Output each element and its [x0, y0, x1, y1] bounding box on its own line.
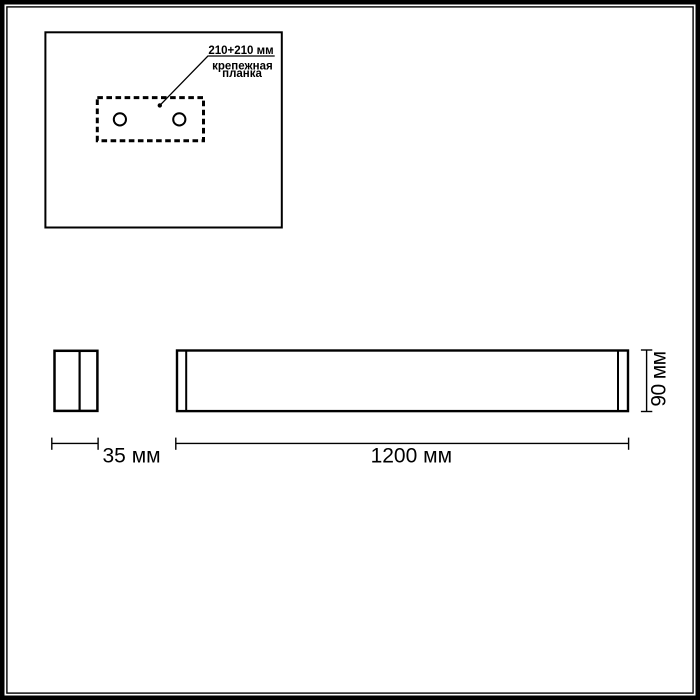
- svg-text:210+210 мм: 210+210 мм: [208, 45, 273, 57]
- svg-text:35 мм: 35 мм: [103, 445, 161, 468]
- svg-text:планка: планка: [222, 68, 262, 80]
- svg-text:90 мм: 90 мм: [648, 352, 671, 407]
- svg-text:1200 мм: 1200 мм: [371, 445, 452, 468]
